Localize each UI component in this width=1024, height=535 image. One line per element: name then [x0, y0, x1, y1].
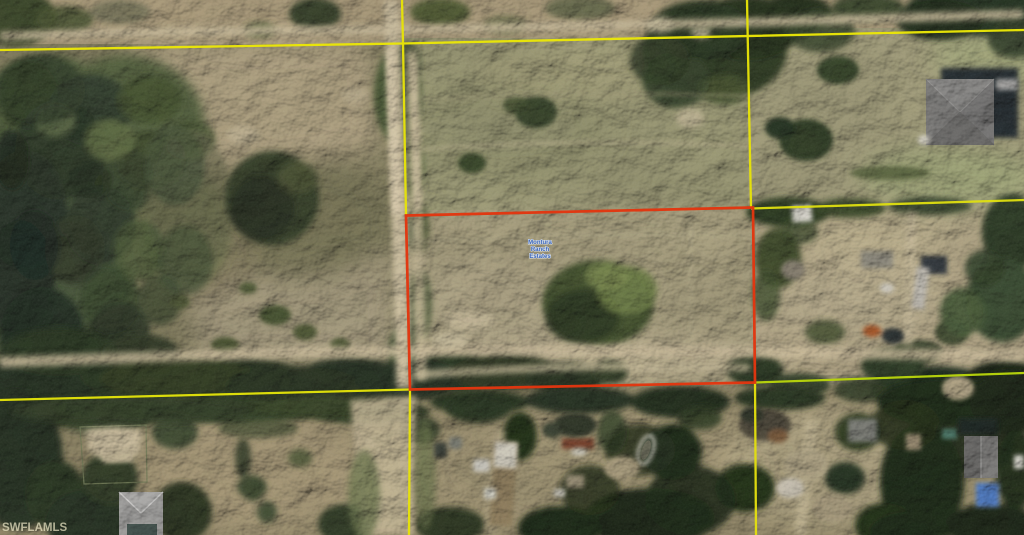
- svg-text:SWFLAMLS: SWFLAMLS: [2, 522, 67, 534]
- svg-text:Estates: Estates: [529, 254, 551, 260]
- svg-text:Ranch: Ranch: [531, 247, 550, 253]
- svg-text:Montura: Montura: [528, 240, 552, 246]
